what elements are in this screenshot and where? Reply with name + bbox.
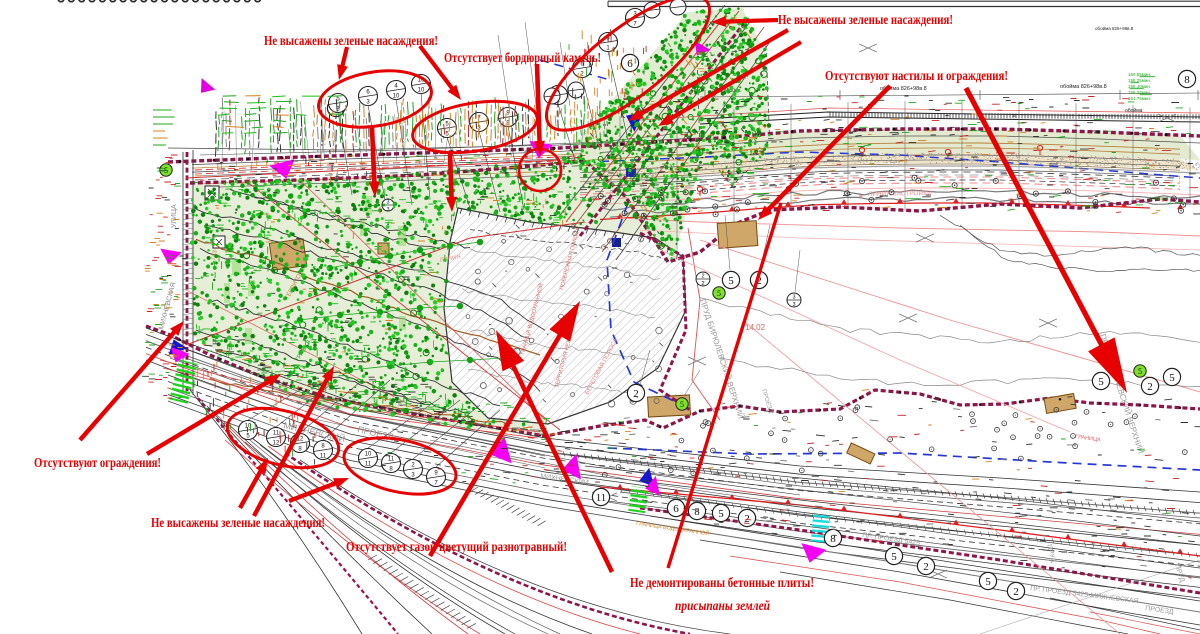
svg-text:Отсутствует бордюрный камень!: Отсутствует бордюрный камень! (444, 50, 601, 65)
svg-text:5: 5 (1098, 376, 1104, 388)
svg-text:8: 8 (1184, 74, 1190, 86)
svg-text:11: 11 (365, 462, 372, 468)
svg-text:Отсутствует газон цветущий раз: Отсутствует газон цветущий разнотравный! (346, 539, 567, 554)
svg-text:Не демонтированы бетонные плит: Не демонтированы бетонные плиты! (630, 575, 814, 590)
svg-text:11: 11 (320, 454, 327, 460)
svg-text:2: 2 (701, 281, 704, 287)
svg-text:5: 5 (1138, 367, 1142, 376)
svg-text:обойма 826+98в.8: обойма 826+98в.8 (1095, 25, 1134, 31)
svg-text:5: 5 (717, 289, 721, 298)
svg-text:5: 5 (891, 551, 897, 563)
svg-text:2: 2 (701, 274, 704, 280)
svg-text:6: 6 (673, 503, 679, 515)
svg-text:Отсутствуют ограждения!: Отсутствуют ограждения! (34, 455, 161, 470)
svg-text:12: 12 (273, 441, 280, 447)
svg-text:3: 3 (792, 302, 795, 308)
svg-text:10: 10 (418, 88, 425, 94)
svg-text:10: 10 (365, 452, 372, 458)
svg-text:10: 10 (393, 94, 400, 100)
svg-text:11: 11 (388, 457, 395, 463)
svg-text:2: 2 (1147, 381, 1153, 393)
svg-text:5: 5 (728, 275, 734, 287)
svg-text:5: 5 (680, 400, 684, 409)
svg-text:2: 2 (1013, 586, 1019, 598)
svg-text:2: 2 (633, 388, 639, 400)
svg-text:Отсутствуют настилы и огражден: Отсутствуют настилы и ограждения! (825, 68, 1008, 83)
svg-text:обойма: обойма (1125, 107, 1143, 114)
svg-text:5: 5 (1169, 372, 1175, 384)
svg-text:3: 3 (792, 295, 795, 301)
svg-text:обойма 826+98в.8: обойма 826+98в.8 (1060, 83, 1107, 90)
svg-text:УЛИЦА: УЛИЦА (171, 204, 178, 228)
svg-text:161.75мин.: 161.75мин. (1128, 96, 1151, 101)
svg-text:5: 5 (718, 508, 724, 520)
svg-text:5: 5 (985, 576, 991, 588)
svg-text:8: 8 (830, 533, 836, 545)
svg-text:6: 6 (627, 58, 633, 70)
svg-text:Не высажены зеленые насаждения: Не высажены зеленые насаждения! (264, 33, 438, 48)
svg-text:Не высажены зеленые насаждения: Не высажены зеленые насаждения! (778, 12, 953, 27)
svg-text:Не высажены зеленые насаждения: Не высажены зеленые насаждения! (151, 515, 325, 530)
svg-text:2: 2 (923, 561, 929, 573)
svg-text:3: 3 (386, 207, 389, 213)
svg-text:10: 10 (245, 424, 252, 430)
svg-text:11: 11 (273, 431, 280, 437)
svg-text:присыпаны землей: присыпаны землей (675, 598, 770, 613)
svg-text:3: 3 (386, 200, 389, 206)
svg-text:8: 8 (694, 506, 700, 518)
svg-text:11: 11 (596, 492, 607, 504)
